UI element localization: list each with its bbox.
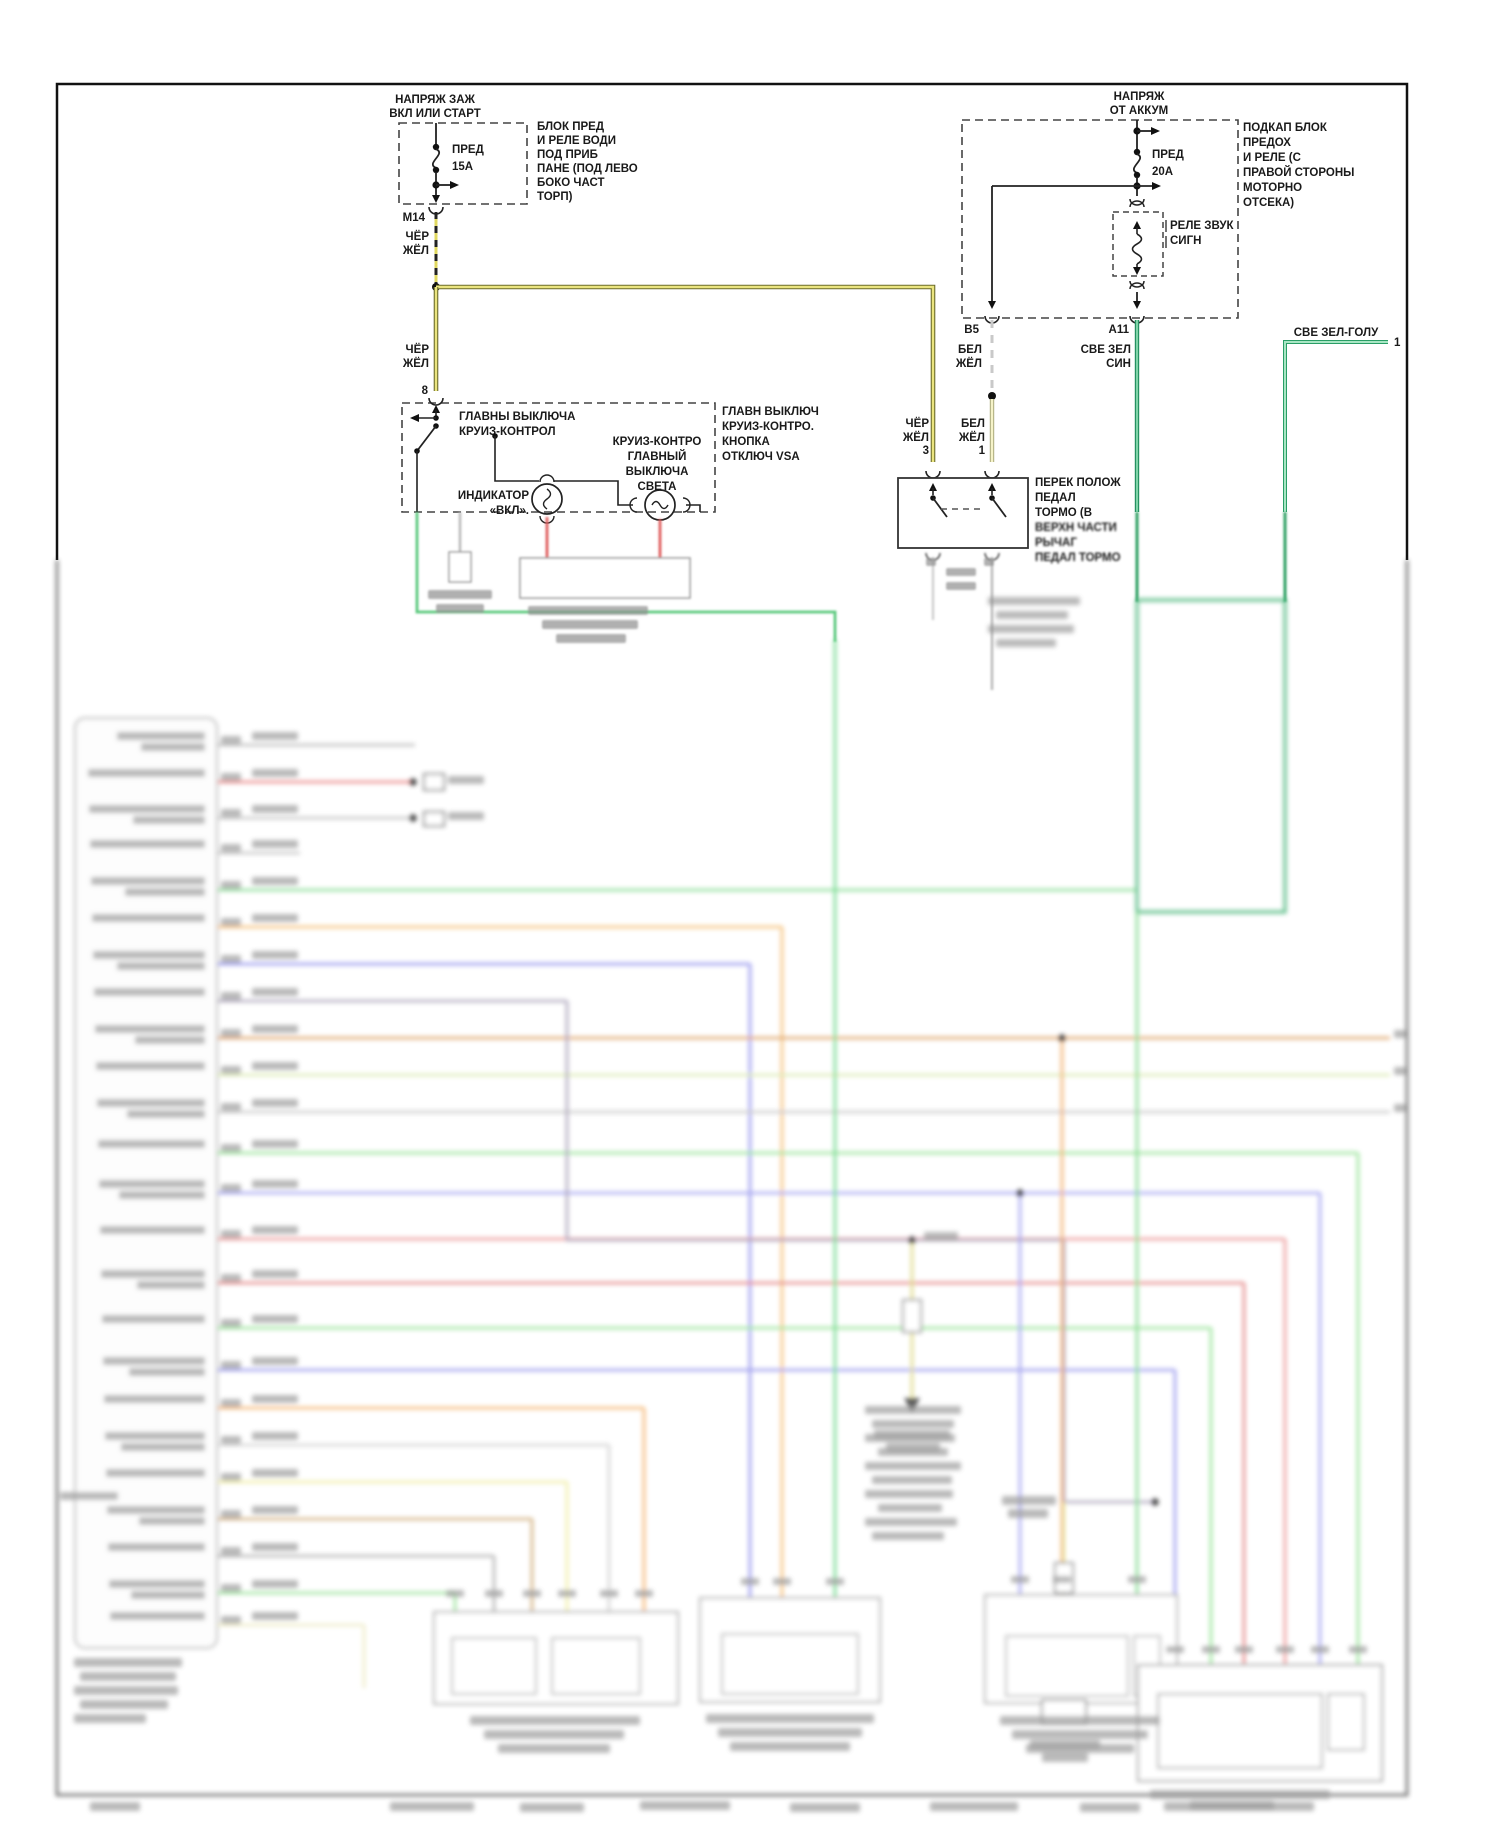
illegible-text-blob	[106, 1469, 205, 1477]
junction-dot	[1058, 1034, 1066, 1042]
component-box	[452, 1638, 536, 1694]
illegible-text-blob	[96, 1062, 205, 1070]
illegible-text-blob	[252, 1612, 298, 1620]
illegible-text-blob	[741, 1578, 759, 1585]
illegible-text-blob	[133, 816, 205, 824]
wire-color-label: ЧЁР	[906, 417, 930, 430]
illegible-text-blob	[221, 1584, 241, 1592]
illegible-text-blob	[100, 1226, 205, 1234]
illegible-text-blob	[221, 1029, 241, 1037]
illegible-text-blob	[252, 1180, 298, 1188]
wire-sve-zel-golu	[1285, 342, 1388, 512]
connector-m14-label: М14	[403, 212, 426, 224]
illegible-text-blob	[872, 1420, 954, 1428]
component-box	[1158, 1694, 1322, 1768]
brake-pedal-switch-box	[898, 478, 1028, 548]
lamp-label: ГЛАВНЫЙ	[628, 450, 687, 463]
illegible-text-blob	[90, 840, 205, 848]
illegible-text-blob	[139, 1517, 205, 1525]
illegible-text-blob	[119, 1191, 205, 1199]
arrow-right-icon	[1151, 127, 1160, 135]
illegible-text-blob	[252, 1025, 298, 1033]
illegible-text-blob	[988, 625, 1074, 633]
illegible-text-blob	[252, 914, 298, 922]
cruise-switch-title2: КРУИЗ-КОНТРОЛ	[459, 426, 556, 438]
illegible-text-blob	[252, 1315, 298, 1323]
wire-color-label: СВЕ ЗЕЛ	[1081, 344, 1131, 356]
illegible-text-blob	[141, 743, 205, 751]
illegible-text-blob	[865, 1518, 957, 1526]
wire-color-label: ЖЁЛ	[955, 357, 982, 370]
illegible-text-blob	[221, 992, 241, 1000]
illegible-text-blob	[252, 1543, 298, 1551]
fuse-15a-symbol	[433, 149, 439, 168]
illegible-text-blob	[930, 1802, 1018, 1811]
illegible-text-blob	[558, 1590, 576, 1597]
cruise-switch-title: ГЛАВНЫ ВЫКЛЮЧА	[459, 411, 575, 423]
illegible-text-blob	[221, 736, 241, 744]
illegible-text-blob	[924, 1232, 958, 1241]
illegible-text-blob	[102, 1315, 205, 1323]
illegible-text-blob	[103, 1357, 205, 1365]
illegible-text-blob	[221, 1399, 241, 1407]
fuse-box-left-desc: ПОД ПРИБ	[537, 149, 598, 161]
wire-color-label: ЖЁЛ	[402, 357, 429, 370]
fuse-15a-rating: 15A	[452, 161, 473, 173]
illegible-text-blob	[1202, 1646, 1220, 1653]
illegible-text-blob	[129, 1368, 205, 1376]
illegible-text-blob	[117, 962, 205, 970]
illegible-text-blob	[528, 606, 648, 615]
illegible-text-blob	[221, 844, 241, 852]
illegible-text-blob	[252, 1580, 298, 1588]
illegible-text-blob	[865, 1490, 953, 1498]
illegible-text-blob	[1000, 1716, 1160, 1725]
illegible-text-blob	[826, 1578, 844, 1585]
horn-relay-label: РЕЛЕ ЗВУК	[1170, 220, 1235, 232]
fuse-box-left-desc: БЛОК ПРЕД	[537, 121, 604, 133]
lamp-label: СВЕТА	[638, 481, 677, 493]
illegible-text-blob	[131, 1591, 205, 1599]
illegible-text-blob	[1394, 1030, 1406, 1038]
pin-1-label: 1	[979, 445, 986, 457]
illegible-text-blob	[252, 877, 298, 885]
illegible-text-blob	[886, 1443, 940, 1452]
illegible-text-blob	[221, 1274, 241, 1282]
illegible-text-blob	[773, 1578, 791, 1585]
illegible-text-blob	[996, 611, 1068, 619]
illegible-text-blob	[1011, 1576, 1029, 1583]
illegible-text-blob	[92, 914, 205, 922]
illegible-text-blob	[252, 1506, 298, 1514]
illegible-text-blob	[125, 888, 205, 896]
illegible-text-blob	[718, 1728, 862, 1737]
illegible-text-blob	[221, 918, 241, 926]
illegible-text-blob	[221, 955, 241, 963]
component-box	[552, 1638, 640, 1694]
fuse-box-right-desc: И РЕЛЕ (С	[1243, 152, 1301, 164]
illegible-text-blob	[1150, 1790, 1330, 1799]
fuse-box-right-desc: МОТОРНО	[1243, 182, 1302, 194]
illegible-text-blob	[946, 582, 976, 590]
illegible-text-blob	[121, 1443, 205, 1451]
illegible-text-blob	[1008, 1509, 1048, 1518]
illegible-text-blob	[127, 1110, 205, 1118]
pedal-switch-desc: ПЕДАЛ ТОРМО	[1035, 552, 1121, 564]
illegible-text-blob	[1042, 1753, 1088, 1762]
ignition-voltage-label: НАПРЯЖ ЗАЖ	[395, 94, 475, 106]
illegible-text-blob	[706, 1714, 874, 1723]
connector-a11-label: A11	[1109, 324, 1130, 336]
lamp-label: ВЫКЛЮЧА	[626, 466, 689, 478]
illegible-text-blob	[542, 620, 638, 629]
illegible-text-blob	[1128, 1576, 1146, 1583]
illegible-text-blob	[428, 590, 492, 599]
pin-1-right-label: 1	[1394, 337, 1401, 349]
illegible-text-blob	[635, 1590, 653, 1597]
illegible-text-blob	[221, 773, 241, 781]
junction-dot	[1016, 1189, 1024, 1197]
ignition-voltage-label2: ВКЛ ИЛИ СТАРТ	[389, 108, 481, 120]
illegible-text-blob	[252, 732, 298, 740]
illegible-text-blob	[1002, 1496, 1056, 1505]
fuse-box-left-desc: БОКО ЧАСТ	[537, 177, 605, 189]
battery-voltage-label: НАПРЯЖ	[1114, 91, 1165, 103]
illegible-text-blob	[1349, 1646, 1367, 1653]
illegible-text-blob	[996, 639, 1056, 647]
illegible-text-blob	[1394, 1104, 1406, 1112]
illegible-text-blob	[221, 1616, 241, 1624]
illegible-text-blob	[252, 1395, 298, 1403]
illegible-text-blob	[110, 1612, 205, 1620]
illegible-text-blob	[556, 634, 626, 643]
illegible-text-blob	[252, 1099, 298, 1107]
component-box	[1328, 1694, 1364, 1750]
illegible-text-blob	[252, 840, 298, 848]
illegible-text-blob	[95, 1025, 205, 1033]
page-border-top	[57, 84, 1407, 560]
illegible-text-blob	[221, 1103, 241, 1111]
illegible-text-blob	[436, 604, 484, 613]
top-section: НАПРЯЖ ЗАЖ ВКЛ ИЛИ СТАРТ ПРЕД 15A БЛОК П…	[57, 84, 1407, 560]
fuse-15a-label: ПРЕД	[452, 144, 484, 156]
illegible-text-blob	[74, 1714, 146, 1723]
illegible-text-blob	[137, 1281, 205, 1289]
pedal-switch-desc: ВЕРХН ЧАСТИ	[1035, 522, 1117, 534]
illegible-text-blob	[88, 769, 205, 777]
connector-pin8-icon	[429, 398, 443, 405]
component-box	[1006, 1636, 1128, 1696]
illegible-text-blob	[1080, 1803, 1140, 1812]
fuse-box-right-desc: ОТСЕКА)	[1243, 197, 1294, 209]
illegible-text-blob	[1012, 1730, 1148, 1739]
illegible-text-blob	[107, 1506, 205, 1514]
illegible-text-blob	[98, 1140, 205, 1148]
illegible-text-blob	[221, 809, 241, 817]
illegible-text-blob	[926, 558, 936, 566]
wire-color-label: БЕЛ	[958, 344, 982, 356]
fuse-box-right-desc: ПРЕДОХ	[1243, 137, 1291, 149]
illegible-text-blob	[1053, 1576, 1071, 1583]
lamp-module-box	[520, 558, 690, 598]
wire-sve-zel-golu-label: СВЕ ЗЕЛ-ГОЛУ	[1294, 327, 1379, 339]
illegible-text-blob	[640, 1801, 730, 1810]
illegible-text-blob	[390, 1802, 474, 1811]
pedal-switch-desc: ПЕРЕК ПОЛОЖ	[1035, 477, 1121, 489]
illegible-text-blob	[93, 951, 205, 959]
illegible-text-blob	[90, 1802, 140, 1811]
blur-heavy-section	[57, 560, 1407, 1812]
component-box	[722, 1634, 858, 1694]
illegible-text-blob	[600, 1590, 618, 1597]
illegible-text-blob	[252, 1469, 298, 1477]
illegible-text-blob	[74, 1686, 178, 1695]
illegible-text-blob	[221, 881, 241, 889]
indicator-label2: «ВКЛ».	[490, 505, 529, 517]
illegible-text-blob	[1030, 1740, 1100, 1749]
illegible-text-blob	[252, 988, 298, 996]
illegible-text-blob	[872, 1476, 952, 1484]
fuse-box-left-desc: ПАНЕ (ПОД ЛЕВО	[537, 163, 638, 175]
illegible-text-blob	[520, 1803, 584, 1812]
connector-b5-label: B5	[964, 324, 979, 336]
illegible-text-blob	[470, 1716, 640, 1725]
illegible-text-blob	[874, 1430, 950, 1439]
arrow-right-icon	[1152, 182, 1161, 190]
illegible-text-blob	[221, 1319, 241, 1327]
illegible-text-blob	[878, 1504, 942, 1512]
vsa-note: ОТКЛЮЧ VSA	[722, 451, 800, 463]
illegible-text-blob	[99, 1180, 205, 1188]
battery-voltage-label2: ОТ АККУМ	[1110, 105, 1169, 117]
illegible-text-blob	[252, 1270, 298, 1278]
junction-dot	[908, 1236, 916, 1244]
vsa-note: ГЛАВН ВЫКЛЮЧ	[722, 406, 819, 418]
illegible-text-blob	[252, 1357, 298, 1365]
fuse-box-right-desc: ПОДКАП БЛОК	[1243, 122, 1328, 134]
illegible-text-blob	[523, 1590, 541, 1597]
wire-color-label: ЖЁЛ	[958, 431, 985, 444]
illegible-text-blob	[730, 1742, 850, 1751]
illegible-text-blob	[221, 1361, 241, 1369]
horn-relay-label2: СИГН	[1170, 235, 1201, 247]
illegible-text-blob	[80, 1672, 176, 1681]
illegible-text-blob	[252, 769, 298, 777]
lamp-label: КРУИЗ-КОНТРО	[613, 436, 702, 448]
illegible-text-blob	[101, 1270, 205, 1278]
illegible-text-blob	[221, 1144, 241, 1152]
illegible-text-blob	[109, 1580, 205, 1588]
illegible-text-blob	[252, 1432, 298, 1440]
illegible-text-blob	[1190, 1801, 1274, 1810]
wire-color-label: ЖЁЛ	[902, 431, 929, 444]
illegible-text-blob	[988, 597, 1080, 605]
illegible-text-blob	[984, 558, 994, 566]
pedal-switch-desc: РЫЧАГ	[1035, 537, 1077, 549]
illegible-text-blob	[117, 732, 205, 740]
illegible-text-blob	[1235, 1646, 1253, 1653]
illegible-text-blob	[252, 805, 298, 813]
fuse-box-left-desc: ТОРП)	[537, 191, 573, 203]
junction-dot	[409, 814, 417, 822]
pedal-switch-desc: ТОРМО (В	[1035, 507, 1092, 519]
illegible-text-blob	[484, 1730, 624, 1739]
component-box	[903, 1300, 921, 1332]
junction-dot	[988, 392, 996, 400]
arrow-down-icon	[988, 301, 996, 309]
illegible-text-blob	[91, 877, 205, 885]
illegible-text-blob	[221, 1066, 241, 1074]
illegible-text-blob	[865, 1406, 961, 1414]
wire-color-label: ЧЁР	[406, 230, 430, 243]
illegible-text-blob	[80, 1700, 168, 1709]
illegible-text-blob	[105, 1432, 205, 1440]
illegible-text-blob	[448, 776, 484, 784]
wire-color-label: ЖЁЛ	[402, 244, 429, 257]
illegible-text-blob	[104, 1395, 205, 1403]
illegible-text-blob	[221, 1473, 241, 1481]
illegible-text-blob	[221, 1510, 241, 1518]
illegible-text-blob	[221, 1230, 241, 1238]
illegible-text-blob	[498, 1744, 610, 1753]
illegible-text-blob	[252, 1226, 298, 1234]
pedal-switch-desc: ПЕДАЛ	[1035, 492, 1076, 504]
junction-dot	[409, 778, 417, 786]
indicator-label: ИНДИКАТОР	[458, 490, 529, 502]
component-box	[424, 812, 444, 826]
wire-color-label: СИН	[1106, 358, 1131, 370]
illegible-text-blob	[60, 1492, 118, 1500]
illegible-text-blob	[1394, 1067, 1406, 1075]
illegible-text-blob	[1166, 1646, 1184, 1653]
illegible-text-blob	[485, 1590, 503, 1597]
pin-8-label: 8	[422, 385, 429, 397]
illegible-text-blob	[94, 988, 205, 996]
illegible-text-blob	[1276, 1646, 1294, 1653]
component-box	[424, 774, 444, 790]
fuse-20a-symbol	[1134, 154, 1140, 173]
illegible-text-blob	[872, 1532, 944, 1540]
switch-blade	[417, 426, 436, 451]
arrow-down-icon	[432, 195, 440, 203]
illegible-text-blob	[221, 1184, 241, 1192]
vsa-note: КРУИЗ-КОНТРО.	[722, 421, 814, 433]
pin-3-label: 3	[923, 445, 929, 457]
illegible-text-blob	[252, 1062, 298, 1070]
fuse-20a-label: ПРЕД	[1152, 149, 1184, 161]
fuse-box-right-desc: ПРАВОЙ СТОРОНЫ	[1243, 166, 1354, 179]
wire-color-label: ЧЁР	[406, 343, 430, 356]
fuse-20a-rating: 20A	[1152, 166, 1173, 178]
arrow-right-icon	[450, 181, 459, 189]
illegible-text-blob	[448, 812, 484, 820]
illegible-text-blob	[446, 1590, 464, 1597]
illegible-text-blob	[135, 1036, 205, 1044]
fuse-box-left-desc: И РЕЛЕ ВОДИ	[537, 135, 616, 147]
illegible-text-blob	[74, 1658, 182, 1667]
illegible-text-blob	[946, 568, 976, 576]
illegible-text-blob	[790, 1803, 860, 1812]
wire-color-label: БЕЛ	[961, 418, 985, 430]
wiring-diagram-svg: НАПРЯЖ ЗАЖ ВКЛ ИЛИ СТАРТ ПРЕД 15A БЛОК П…	[0, 0, 1500, 1828]
arrow-left-icon	[410, 414, 419, 422]
illegible-text-blob	[252, 1140, 298, 1148]
illegible-text-blob	[1311, 1646, 1329, 1653]
relay-coil-icon	[1133, 234, 1142, 264]
illegible-text-blob	[865, 1462, 961, 1470]
scanned-wiring-diagram-page: НАПРЯЖ ЗАЖ ВКЛ ИЛИ СТАРТ ПРЕД 15A БЛОК П…	[0, 0, 1500, 1828]
illegible-text-blob	[221, 1547, 241, 1555]
fuse-box-right	[962, 120, 1238, 318]
junction-dot	[1151, 1498, 1159, 1506]
illegible-text-blob	[89, 805, 205, 813]
wire-path	[1137, 600, 1285, 912]
illegible-text-blob	[252, 951, 298, 959]
vsa-note: КНОПКА	[722, 436, 770, 448]
illegible-text-blob	[221, 1436, 241, 1444]
illegible-text-blob	[108, 1543, 205, 1551]
illegible-text-blob	[97, 1099, 205, 1107]
